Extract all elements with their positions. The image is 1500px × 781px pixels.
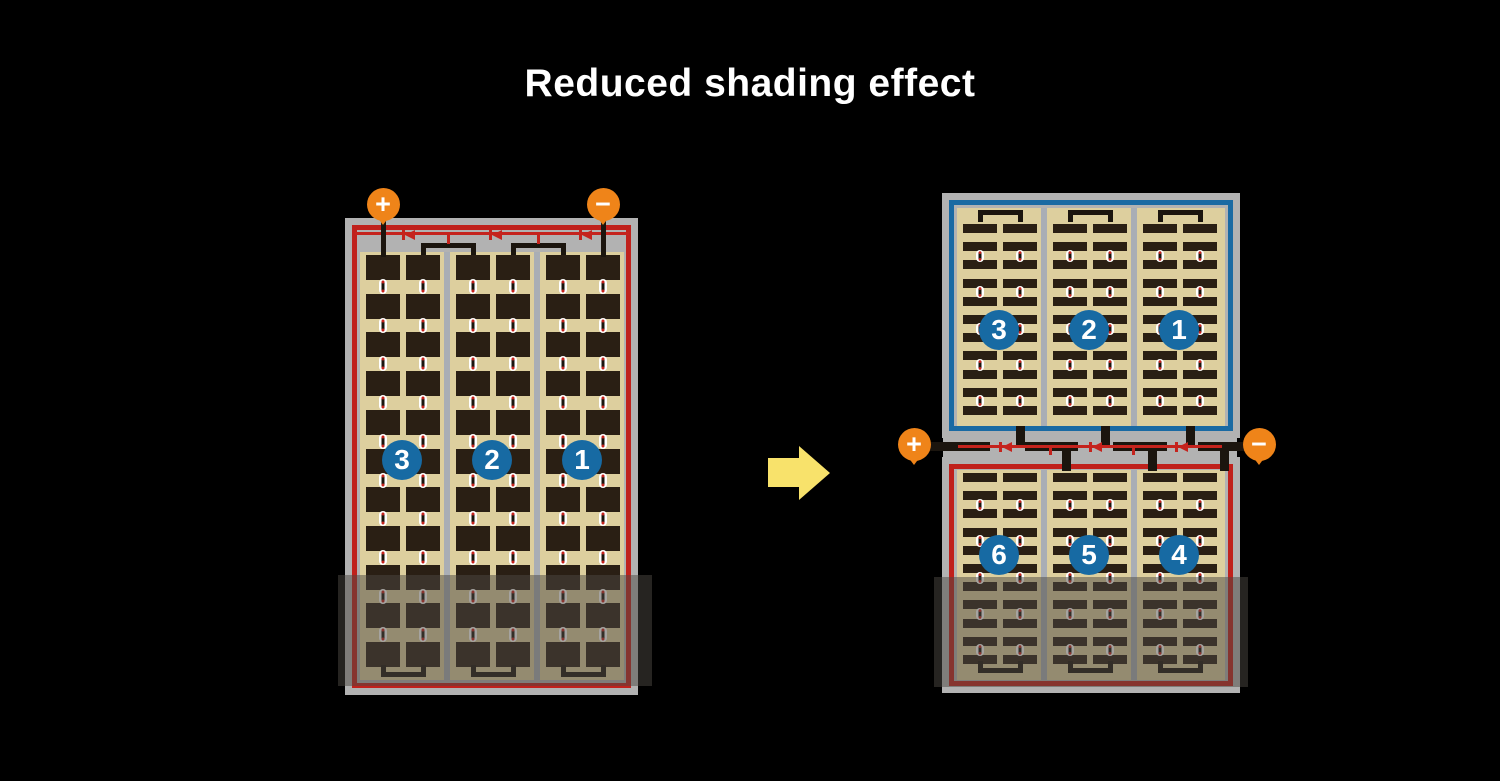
half-cell <box>1183 260 1217 269</box>
half-cell <box>1093 509 1127 518</box>
half-cell <box>1183 297 1217 306</box>
cell-connector <box>559 550 567 565</box>
solar-cell <box>406 332 440 357</box>
cell-connector <box>1196 359 1204 371</box>
solar-cell <box>456 294 490 319</box>
solar-cell <box>406 294 440 319</box>
cell-connector <box>559 511 567 526</box>
solar-cell <box>586 410 620 435</box>
cell-connector <box>379 511 387 526</box>
solar-cell <box>496 255 530 280</box>
arrow-head <box>799 446 830 500</box>
cell-connector <box>509 511 517 526</box>
cell-connector <box>1016 286 1024 298</box>
cell-connector <box>379 318 387 333</box>
cell-connector <box>469 511 477 526</box>
half-cell <box>963 406 997 415</box>
cell-connector <box>976 359 984 371</box>
solar-cell <box>456 255 490 280</box>
half-cell <box>1053 260 1087 269</box>
string-divider <box>1131 208 1137 426</box>
cell-connector <box>1106 250 1114 262</box>
diode-triangle <box>582 230 592 240</box>
cell-connector <box>469 395 477 410</box>
string-label-1: 1 <box>562 440 602 480</box>
diode-icon <box>489 230 502 240</box>
string-label-2: 2 <box>1069 310 1109 350</box>
string-top-jumper <box>511 243 566 255</box>
half-cell <box>1003 473 1037 482</box>
cell-connector <box>1016 359 1024 371</box>
cell-connector <box>509 279 517 294</box>
string-divider <box>1041 208 1047 426</box>
solar-cell <box>546 332 580 357</box>
half-cell <box>1143 509 1177 518</box>
diode-triangle <box>1092 442 1102 452</box>
solar-cell <box>496 410 530 435</box>
cell-connector <box>509 550 517 565</box>
solar-cell <box>456 410 490 435</box>
cell-connector <box>509 434 517 449</box>
cell-connector <box>599 395 607 410</box>
positive-terminal-right: + <box>898 428 931 461</box>
cell-connector <box>1196 286 1204 298</box>
half-cell <box>1093 260 1127 269</box>
diagram-canvas: Reduced shading effect +−321+−321654 <box>0 0 1500 781</box>
half-cell <box>963 370 997 379</box>
solar-cell <box>406 371 440 396</box>
cell-connector <box>1066 250 1074 262</box>
solar-cell <box>366 526 400 551</box>
half-cell <box>1093 473 1127 482</box>
half-cell <box>1003 260 1037 269</box>
solar-cell <box>586 487 620 512</box>
solar-cell <box>406 255 440 280</box>
cell-connector <box>469 279 477 294</box>
solar-cell <box>366 255 400 280</box>
cell-connector <box>559 395 567 410</box>
cell-connector <box>976 250 984 262</box>
half-cell <box>1053 509 1087 518</box>
cell-connector <box>559 279 567 294</box>
cell-connector <box>419 318 427 333</box>
solar-cell <box>586 294 620 319</box>
cell-connector <box>1106 499 1114 511</box>
cell-connector <box>1016 499 1024 511</box>
half-cell <box>1093 224 1127 233</box>
half-cell <box>963 509 997 518</box>
cell-connector <box>509 395 517 410</box>
cell-connector <box>509 473 517 488</box>
cell-tab <box>1062 445 1071 471</box>
solar-cell <box>496 487 530 512</box>
cell-connector <box>469 318 477 333</box>
diode-triangle <box>405 230 415 240</box>
half-cell <box>1183 509 1217 518</box>
string-top-jumper <box>1068 210 1113 222</box>
half-cell <box>1053 370 1087 379</box>
solar-cell <box>406 410 440 435</box>
half-cell <box>963 297 997 306</box>
cell-connector <box>976 286 984 298</box>
half-cell <box>1003 370 1037 379</box>
cell-connector <box>419 511 427 526</box>
cell-connector <box>1156 359 1164 371</box>
half-cell <box>963 224 997 233</box>
solar-cell <box>456 332 490 357</box>
cell-connector <box>1156 250 1164 262</box>
positive-terminal-left: + <box>367 188 400 221</box>
cell-connector <box>559 318 567 333</box>
half-cell <box>1143 406 1177 415</box>
solar-cell <box>456 487 490 512</box>
page-title: Reduced shading effect <box>0 62 1500 106</box>
solar-cell <box>366 332 400 357</box>
cell-connector <box>599 318 607 333</box>
cell-connector <box>976 395 984 407</box>
cell-connector <box>1016 395 1024 407</box>
shade-overlay-right <box>934 577 1248 687</box>
cell-connector <box>599 356 607 371</box>
cell-connector <box>1196 499 1204 511</box>
diode-icon <box>999 442 1012 452</box>
solar-cell <box>586 526 620 551</box>
half-cell <box>1143 297 1177 306</box>
string-top-jumper <box>421 243 476 255</box>
solar-cell <box>586 371 620 396</box>
cell-connector <box>1156 499 1164 511</box>
solar-cell <box>586 255 620 280</box>
solar-cell <box>366 294 400 319</box>
half-cell <box>1053 297 1087 306</box>
shade-overlay-left <box>338 575 652 686</box>
cell-connector <box>599 473 607 488</box>
solar-cell <box>586 332 620 357</box>
cell-connector <box>1016 535 1024 547</box>
cell-connector <box>419 434 427 449</box>
cell-connector <box>1066 499 1074 511</box>
diode-icon <box>1089 442 1102 452</box>
solar-cell <box>546 371 580 396</box>
diode-triangle <box>1178 442 1188 452</box>
half-cell <box>1143 260 1177 269</box>
arrow-shaft <box>768 458 799 487</box>
solar-cell <box>456 371 490 396</box>
cell-connector <box>1106 286 1114 298</box>
string-label-1: 1 <box>1159 310 1199 350</box>
cell-connector <box>469 550 477 565</box>
diode-icon <box>1175 442 1188 452</box>
cell-connector <box>976 499 984 511</box>
cell-connector <box>1196 535 1204 547</box>
cell-connector <box>599 279 607 294</box>
cell-connector <box>379 356 387 371</box>
solar-cell <box>406 526 440 551</box>
cell-connector <box>419 356 427 371</box>
cell-tab <box>1220 445 1229 471</box>
cell-connector <box>1016 250 1024 262</box>
diode-tap-wire <box>537 235 540 244</box>
solar-cell <box>496 526 530 551</box>
diode-tap-wire <box>1049 447 1052 455</box>
half-cell <box>1093 406 1127 415</box>
solar-cell <box>546 294 580 319</box>
half-cell <box>1093 370 1127 379</box>
junction-box-strip <box>943 436 1237 457</box>
cell-connector <box>469 473 477 488</box>
cell-connector <box>559 473 567 488</box>
diode-icon <box>402 230 415 240</box>
string-label-3: 3 <box>382 440 422 480</box>
half-cell <box>1143 473 1177 482</box>
cell-connector <box>1066 286 1074 298</box>
solar-cell <box>496 294 530 319</box>
string-top-jumper <box>1158 210 1203 222</box>
cell-connector <box>419 473 427 488</box>
cell-connector <box>1106 395 1114 407</box>
cell-connector <box>379 279 387 294</box>
cell-connector <box>599 511 607 526</box>
negative-terminal-right: − <box>1243 428 1276 461</box>
solar-cell <box>496 371 530 396</box>
cell-connector <box>1156 395 1164 407</box>
cell-connector <box>419 550 427 565</box>
cell-connector <box>1196 395 1204 407</box>
solar-cell <box>546 487 580 512</box>
cell-connector <box>509 356 517 371</box>
cell-tab <box>1101 426 1110 447</box>
cell-connector <box>469 356 477 371</box>
half-cell <box>1053 224 1087 233</box>
half-cell <box>1003 224 1037 233</box>
half-cell <box>1053 473 1087 482</box>
string-label-3: 3 <box>979 310 1019 350</box>
cell-connector <box>1156 286 1164 298</box>
solar-cell <box>366 371 400 396</box>
cell-connector <box>599 434 607 449</box>
half-cell <box>1003 297 1037 306</box>
diode-tap-wire <box>1132 447 1135 455</box>
solar-cell <box>546 255 580 280</box>
half-cell <box>963 260 997 269</box>
half-cell <box>1053 406 1087 415</box>
string-label-5: 5 <box>1069 535 1109 575</box>
solar-cell <box>546 410 580 435</box>
cell-connector <box>509 318 517 333</box>
right-arrow-icon <box>768 446 830 500</box>
cell-connector <box>419 279 427 294</box>
cell-connector <box>379 473 387 488</box>
half-cell <box>1003 406 1037 415</box>
diode-tap-wire <box>447 235 450 244</box>
half-cell <box>1143 224 1177 233</box>
cell-connector <box>559 356 567 371</box>
cell-tab <box>1016 426 1025 447</box>
solar-cell <box>406 487 440 512</box>
cell-connector <box>1106 359 1114 371</box>
half-cell <box>1183 406 1217 415</box>
cell-tab <box>1148 445 1157 471</box>
string-label-6: 6 <box>979 535 1019 575</box>
half-cell <box>1183 473 1217 482</box>
cell-connector <box>1106 535 1114 547</box>
cell-connector <box>1066 359 1074 371</box>
solar-cell <box>546 526 580 551</box>
half-cell <box>1003 509 1037 518</box>
string-top-jumper <box>978 210 1023 222</box>
half-cell <box>963 473 997 482</box>
solar-cell <box>366 487 400 512</box>
negative-terminal-left: − <box>587 188 620 221</box>
half-cell <box>1093 297 1127 306</box>
string-label-4: 4 <box>1159 535 1199 575</box>
solar-cell <box>456 526 490 551</box>
half-cell <box>1143 370 1177 379</box>
half-cell <box>1183 224 1217 233</box>
diode-triangle <box>492 230 502 240</box>
cell-connector <box>1196 250 1204 262</box>
solar-cell <box>496 332 530 357</box>
solar-cell <box>366 410 400 435</box>
diode-triangle <box>1002 442 1012 452</box>
cell-connector <box>419 395 427 410</box>
cell-connector <box>1066 395 1074 407</box>
cell-connector <box>599 550 607 565</box>
diode-icon <box>579 230 592 240</box>
cell-connector <box>379 550 387 565</box>
string-label-2: 2 <box>472 440 512 480</box>
cell-connector <box>379 395 387 410</box>
half-cell <box>1183 370 1217 379</box>
